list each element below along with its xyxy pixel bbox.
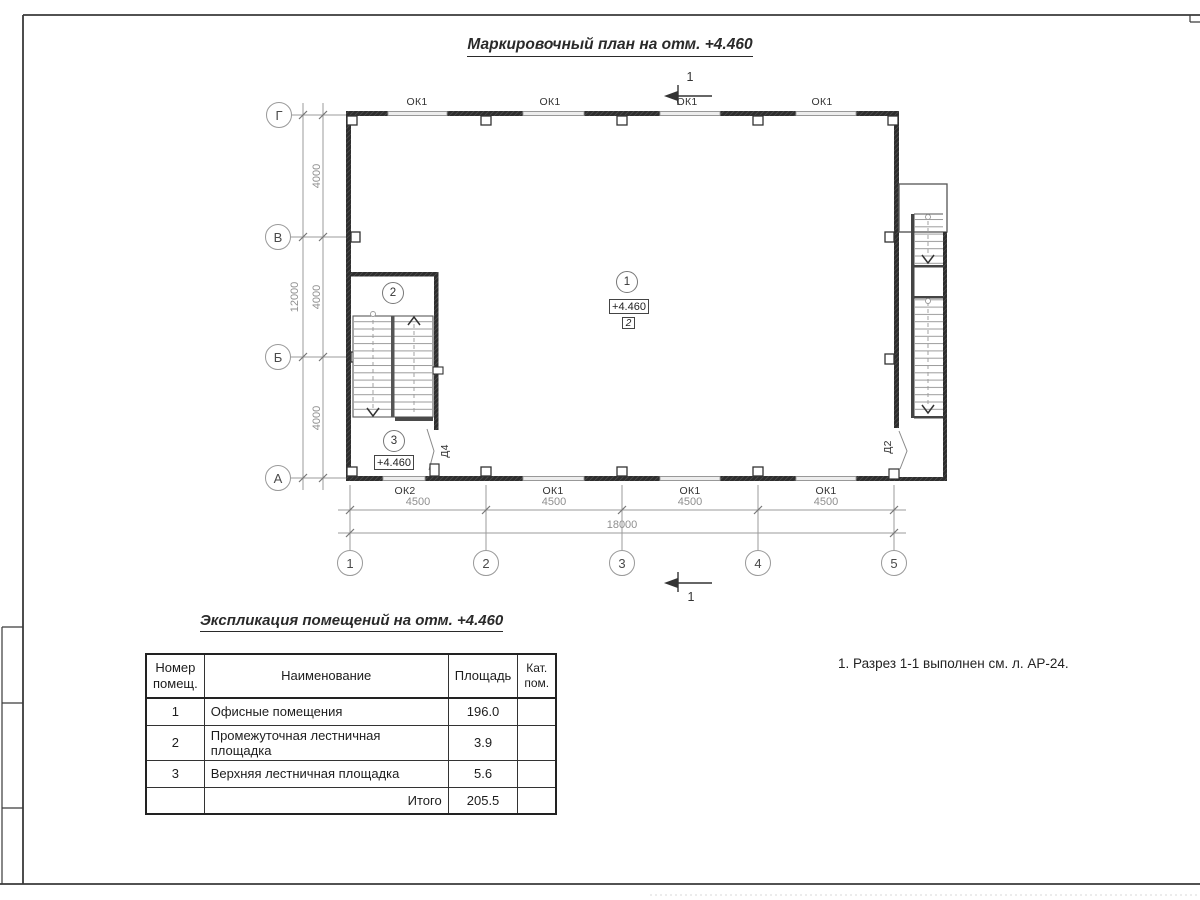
room-1-elevation: +4.460 — [609, 299, 649, 314]
room-number: 2 — [146, 725, 204, 760]
plan-title: Маркировочный план на отм. +4.460 — [400, 36, 820, 57]
total-category-cell — [518, 787, 556, 814]
room-name: Верхняя лестничная площадка — [204, 760, 448, 787]
room-schedule-table: Номер помещ. Наименование Площадь Кат. п… — [145, 653, 557, 815]
axis-col-5: 5 — [881, 550, 907, 576]
room-category — [518, 760, 556, 787]
drawing-sheet: { "drawing": { "title": "Маркировочный п… — [0, 0, 1200, 900]
dim-4000-3: 4000 — [311, 388, 323, 448]
dim-4000-2: 4000 — [311, 267, 323, 327]
schedule-row-3: 3 Верхняя лестничная площадка 5.6 — [146, 760, 556, 787]
door-label-d4: Д4 — [439, 431, 451, 471]
section-label-top: 1 — [682, 70, 698, 84]
axis-row-b: Б — [265, 344, 291, 370]
dim-4500-3: 4500 — [670, 496, 710, 508]
dim-4500-1: 4500 — [398, 496, 438, 508]
room-3-elevation: +4.460 — [374, 455, 414, 470]
window-label-bottom-3: ОК1 — [670, 485, 710, 497]
room-name: Промежуточная лестничная площадка — [204, 725, 448, 760]
total-empty-cell — [146, 787, 204, 814]
stair-annex-right — [899, 184, 947, 481]
pilasters — [347, 116, 898, 476]
axis-col-2: 2 — [473, 550, 499, 576]
window-label-top-4: ОК1 — [802, 96, 842, 108]
window-openings — [383, 112, 856, 481]
col-header-number: Номер помещ. — [146, 654, 204, 698]
schedule-header-row: Номер помещ. Наименование Площадь Кат. п… — [146, 654, 556, 698]
room-2-marker: 2 — [382, 282, 404, 304]
room-area: 5.6 — [448, 760, 518, 787]
section-marks — [666, 85, 712, 592]
col-header-area: Площадь — [448, 654, 518, 698]
dim-18000: 18000 — [597, 519, 647, 531]
window-label-top-1: ОК1 — [397, 96, 437, 108]
dim-4000-1: 4000 — [311, 146, 323, 206]
axis-col-3: 3 — [609, 550, 635, 576]
section-label-bottom: 1 — [683, 590, 699, 604]
total-area: 205.5 — [448, 787, 518, 814]
axis-row-g: Г — [266, 102, 292, 128]
window-label-top-3: ОК1 — [667, 96, 707, 108]
room-category — [518, 698, 556, 725]
room-3-marker: 3 — [383, 430, 405, 452]
axis-col-1: 1 — [337, 550, 363, 576]
dim-12000: 12000 — [289, 265, 301, 329]
window-label-bottom-4: ОК1 — [806, 485, 846, 497]
total-label: Итого — [204, 787, 448, 814]
schedule-row-1: 1 Офисные помещения 196.0 — [146, 698, 556, 725]
door-label-d2: Д2 — [882, 427, 894, 467]
axis-col-4: 4 — [745, 550, 771, 576]
room-area: 196.0 — [448, 698, 518, 725]
window-label-bottom-2: ОК1 — [533, 485, 573, 497]
schedule-title: Экспликация помещений на отм. +4.460 — [200, 612, 503, 632]
window-label-top-2: ОК1 — [530, 96, 570, 108]
col-header-name: Наименование — [204, 654, 448, 698]
room-1-category: 2 — [622, 317, 635, 329]
schedule-total-row: Итого 205.5 — [146, 787, 556, 814]
room-category — [518, 725, 556, 760]
exterior-walls — [346, 111, 899, 481]
window-label-bottom-1: ОК2 — [385, 485, 425, 497]
room-area: 3.9 — [448, 725, 518, 760]
note-text: 1. Разрез 1-1 выполнен см. л. АР-24. — [838, 656, 1069, 671]
col-header-category: Кат. пом. — [518, 654, 556, 698]
axis-row-a: А — [265, 465, 291, 491]
axis-row-v: В — [265, 224, 291, 250]
schedule-row-2: 2 Промежуточная лестничная площадка 3.9 — [146, 725, 556, 760]
room-number: 1 — [146, 698, 204, 725]
room-name: Офисные помещения — [204, 698, 448, 725]
dim-4500-2: 4500 — [534, 496, 574, 508]
room-1-marker: 1 — [616, 271, 638, 293]
dim-4500-4: 4500 — [806, 496, 846, 508]
room-number: 3 — [146, 760, 204, 787]
door-d4 — [427, 429, 439, 476]
